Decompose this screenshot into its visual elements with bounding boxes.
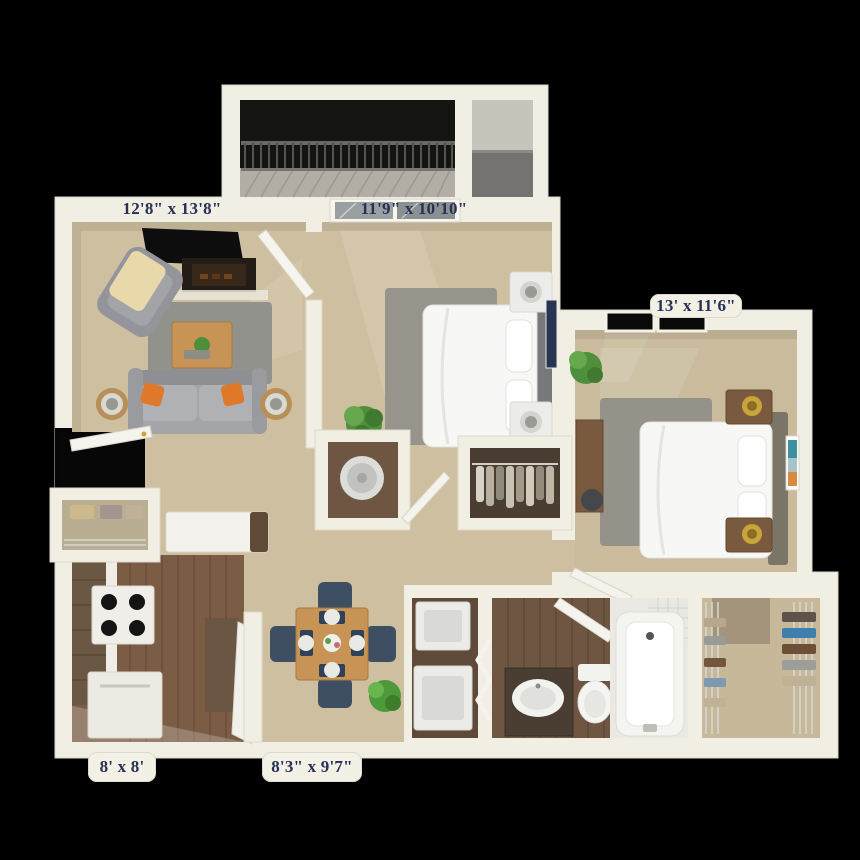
side-table-lamp-left <box>96 388 128 420</box>
kitchen-peninsula-counter <box>166 512 268 552</box>
kitchen-dining-wall <box>244 612 262 742</box>
dining-room-dimensions-label: 8'3" x 9'7" <box>262 752 362 782</box>
refrigerator <box>88 672 162 738</box>
wall-art <box>546 300 557 368</box>
door-handle-icon <box>142 432 147 437</box>
storage-room <box>472 100 533 197</box>
desk-stool <box>581 489 603 511</box>
bedroom1-dimensions-label: 11'9" x 10'10" <box>334 198 494 220</box>
nightstand-top <box>726 390 772 424</box>
wall-art <box>786 436 799 490</box>
bathroom <box>492 598 688 738</box>
dining-table <box>296 608 368 680</box>
stove <box>92 586 154 644</box>
dryer <box>414 666 472 730</box>
sofa <box>128 368 267 434</box>
faucet-icon <box>643 724 657 732</box>
floor-plan-render <box>0 0 860 860</box>
bathtub <box>610 598 688 738</box>
side-table-lamp-right <box>260 388 292 420</box>
throw-pillow <box>220 382 245 407</box>
coat-closet <box>50 488 160 562</box>
bedroom2-dimensions-label: 13' x 11'6" <box>650 294 742 318</box>
walk-in-closet <box>702 598 820 738</box>
pillow <box>506 320 532 372</box>
coffee-table <box>172 322 232 368</box>
vanity <box>505 668 573 736</box>
floor-plan-canvas: 12'8" x 13'8" 11'9" x 10'10" 13' x 11'6"… <box>0 0 860 860</box>
pillow <box>738 436 766 486</box>
storage-floor <box>472 152 533 197</box>
kitchen-dimensions-label: 8' x 8' <box>88 752 156 782</box>
faucet-icon <box>536 684 541 689</box>
nightstand-bottom <box>726 518 772 552</box>
storage-back-wall <box>472 100 533 152</box>
toilet <box>578 664 612 723</box>
balcony <box>240 100 455 197</box>
washer <box>416 602 470 650</box>
bedroom1-closet <box>458 436 572 530</box>
desk <box>576 420 603 512</box>
living-room-dimensions-label: 12'8" x 13'8" <box>92 198 252 220</box>
entry-door <box>55 426 152 498</box>
drain-icon <box>646 632 654 640</box>
bedroom2-doorway <box>552 540 575 572</box>
